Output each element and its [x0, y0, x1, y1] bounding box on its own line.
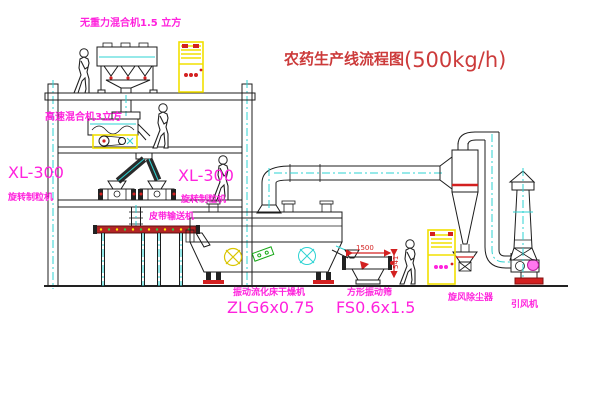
person-figure	[74, 49, 89, 93]
y-splitter-chute	[108, 153, 166, 189]
floor-slab-mid	[58, 147, 242, 153]
control-cabinet-lower	[428, 230, 455, 284]
person-figure	[153, 104, 168, 148]
diagram-title: 农药生产线流程图	[283, 50, 404, 68]
granulator-left-model-label: XL-300	[8, 163, 64, 182]
granulator-left-name-label: 旋转制粒机	[7, 191, 53, 203]
fluid-bed-dryer-model-label: ZLG6x0.75	[227, 298, 315, 317]
belt-conveyor-label: 皮带输送机	[148, 210, 194, 222]
rotary-granulator-right-machine	[138, 189, 176, 200]
exhaust-duct	[257, 157, 452, 213]
crosshair-target-left	[225, 249, 242, 266]
fan-label: 引风机	[511, 298, 538, 310]
granulator-right-name-label: 旋转制粒机	[180, 193, 226, 205]
induced-draft-fan-machine	[511, 253, 543, 284]
floor-slab-top	[45, 93, 255, 100]
green-tag	[252, 247, 274, 261]
square-sieve-name-label: 方形振动筛	[347, 286, 392, 298]
gravity-free-mixer-machine	[97, 43, 157, 93]
granulator-right-model-label: XL-300	[178, 166, 234, 185]
high-speed-mixer-label: 高速混合机3立方	[45, 110, 122, 123]
rotary-granulator-left-machine	[98, 189, 136, 200]
fluid-bed-dryer-name-label: 振动流化床干燥机	[233, 286, 305, 298]
cyclone-label: 旋风除尘器	[447, 291, 494, 303]
conveyor-legs	[102, 233, 183, 286]
person-figure	[400, 240, 415, 284]
diagram-svg: 农药生产线流程图 (500kg/h) 无重力混合机1.5 立方 高速混合机3立方…	[0, 0, 600, 403]
control-cabinet-upper	[179, 42, 203, 92]
crosshair-target-right	[299, 248, 316, 265]
sieve-height-dimension: 541	[392, 256, 400, 269]
sieve-length-dimension: 1500	[356, 244, 374, 252]
conveyor-discharge-chute	[196, 233, 210, 247]
gravity-free-mixer-label: 无重力混合机1.5 立方	[79, 16, 181, 29]
square-sieve-model-label: FS0.6x1.5	[336, 298, 415, 317]
diagram-title-capacity: (500kg/h)	[404, 48, 506, 72]
process-flow-diagram: 农药生产线流程图 (500kg/h) 无重力混合机1.5 立方 高速混合机3立方…	[0, 0, 600, 403]
mixer-feed-pipe	[121, 95, 131, 116]
belt-conveyor-machine	[93, 225, 210, 286]
cyclone-outlet-duct	[485, 132, 513, 268]
